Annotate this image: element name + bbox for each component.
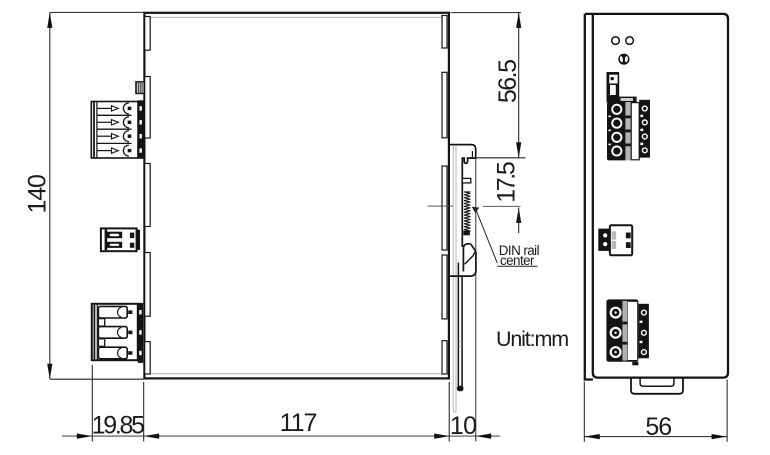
svg-text:17.5: 17.5 xyxy=(492,162,520,203)
svg-text:10: 10 xyxy=(450,412,476,440)
svg-text:center: center xyxy=(500,253,535,268)
svg-text:117: 117 xyxy=(280,409,317,437)
svg-text:Unit:mm: Unit:mm xyxy=(496,327,568,351)
svg-text:140: 140 xyxy=(24,175,52,214)
svg-text:19.85: 19.85 xyxy=(92,412,144,440)
svg-text:56: 56 xyxy=(645,413,671,441)
svg-text:56.5: 56.5 xyxy=(494,60,522,103)
